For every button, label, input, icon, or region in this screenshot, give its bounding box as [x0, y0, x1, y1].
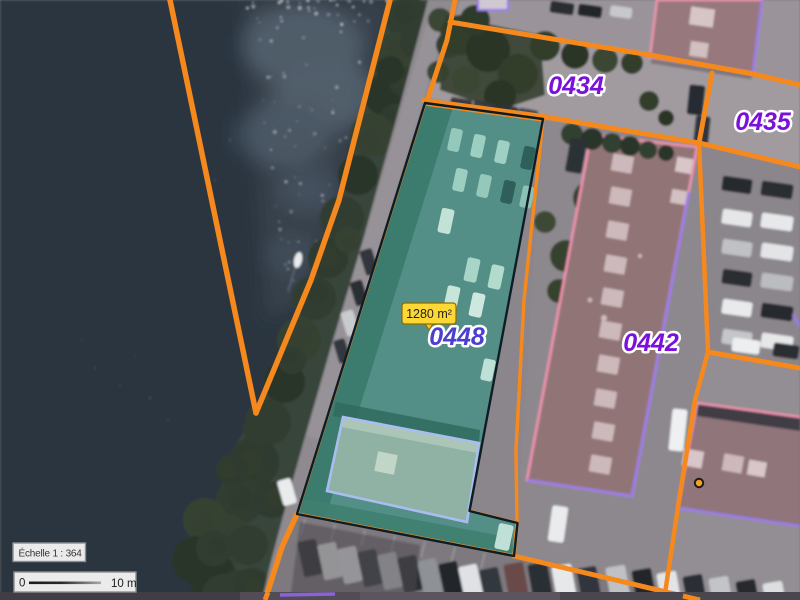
svg-text:1280 m²: 1280 m² [406, 307, 452, 321]
svg-text:0448: 0448 [429, 323, 485, 351]
svg-text:Échelle 1 : 364: Échelle 1 : 364 [19, 547, 83, 560]
svg-text:0435: 0435 [735, 108, 792, 136]
svg-text:10 m: 10 m [111, 578, 137, 590]
svg-text:0434: 0434 [548, 72, 604, 100]
svg-text:0: 0 [19, 578, 25, 590]
svg-text:0442: 0442 [623, 329, 679, 357]
